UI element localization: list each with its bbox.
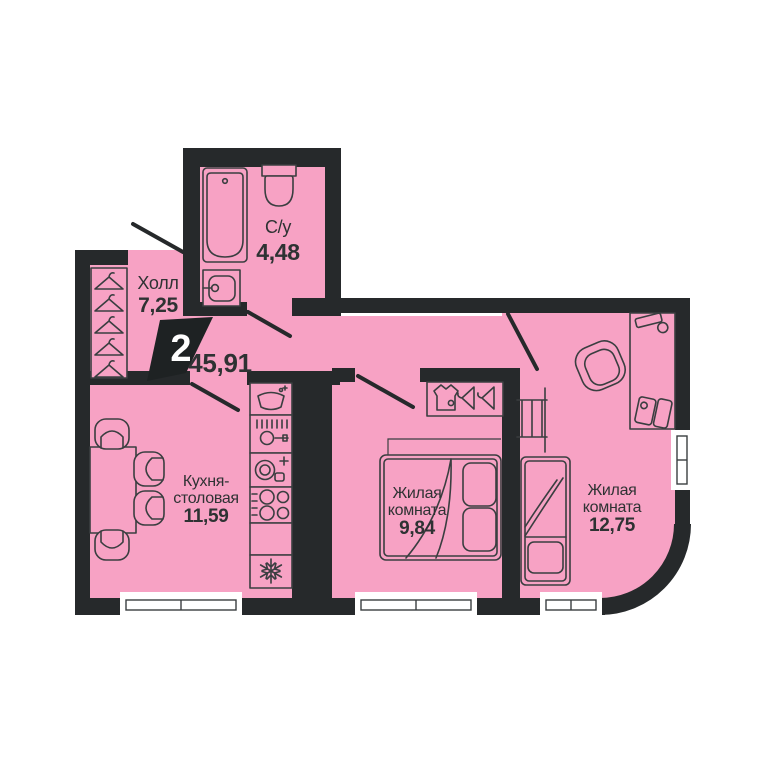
side-window (671, 430, 694, 490)
kitchen-counter-units (250, 383, 292, 588)
bathroom-area: 4,48 (256, 239, 300, 265)
floor-plan: 2 С/у 4,48 Холл 7,25 45,91 Кухня- столов… (0, 0, 768, 768)
living-room-1-area: 9,84 (399, 518, 436, 539)
kitchen-label-line1: Кухня- (183, 473, 229, 490)
living-room-2-label-line2: комната (583, 499, 642, 516)
sink-icon (203, 270, 240, 306)
kitchen-sink-icon (250, 383, 292, 415)
hall-area: 7,25 (138, 294, 178, 317)
washing-machine-icon (250, 415, 292, 453)
cooktop-icon (250, 487, 292, 523)
toilet-icon (262, 165, 296, 206)
living-room-2-area: 12,75 (589, 515, 636, 536)
wardrobe-shirt-icon (427, 382, 503, 416)
single-bed-icon (521, 457, 570, 585)
dining-table-icon (90, 447, 136, 533)
hall-label: Холл (137, 273, 178, 293)
living-room-1-label-line2: комната (388, 502, 447, 519)
living-room-1-label-line1: Жилая (392, 485, 441, 502)
total-area: 45,91 (188, 348, 252, 378)
bathroom-label: С/у (265, 217, 291, 237)
floor-plan-page: 2 С/у 4,48 Холл 7,25 45,91 Кухня- столов… (0, 0, 768, 768)
hall-wardrobe (91, 268, 127, 378)
kitchen-window (120, 592, 242, 619)
living-room-2-window (540, 592, 602, 619)
kitchen-label-line2: столовая (173, 490, 239, 507)
living-room-2-label-line1: Жилая (587, 482, 636, 499)
living-room-1-window (355, 592, 477, 619)
dishwasher-icon (250, 453, 292, 487)
fridge-snowflake-icon (250, 555, 292, 588)
kitchen-area: 11,59 (184, 506, 229, 527)
kitchen-counter (250, 523, 292, 555)
bathtub-icon (203, 168, 247, 262)
